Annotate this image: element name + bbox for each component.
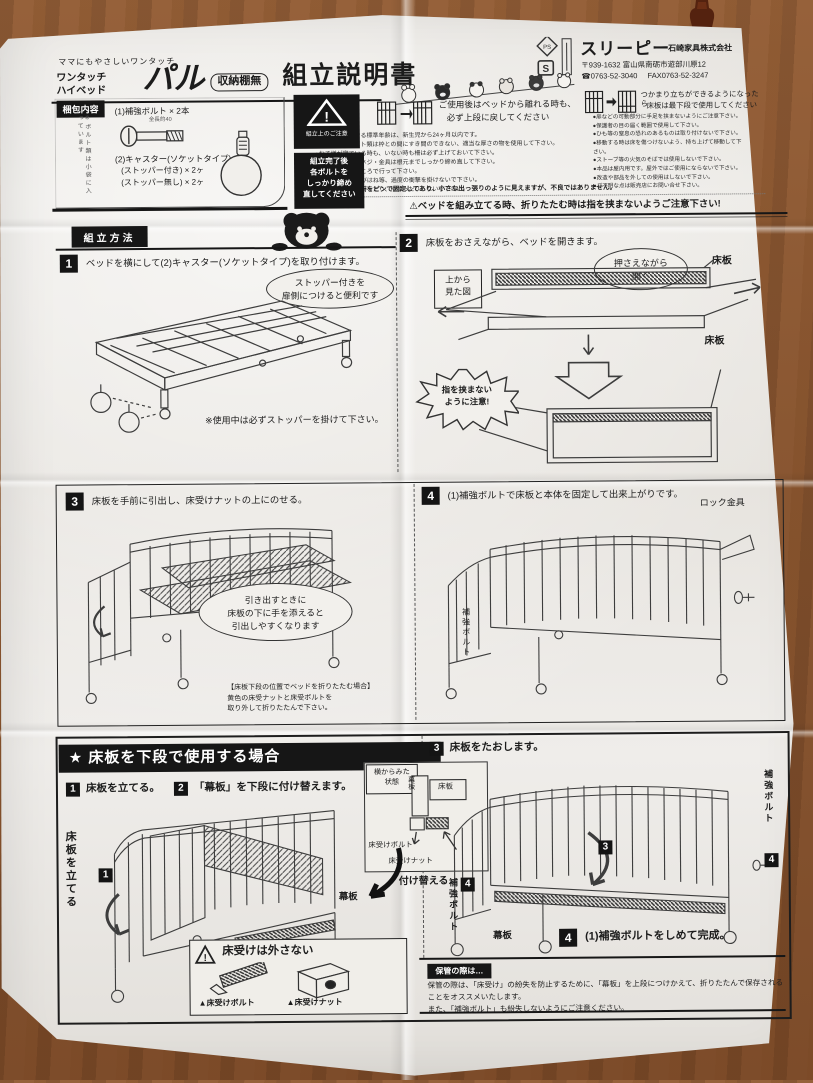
lower-step3-number: 3 xyxy=(430,742,444,756)
maku-board-label-right: 幕板 xyxy=(493,929,512,941)
pinch-warning-starburst: 指を挟まない ように注意! xyxy=(415,367,519,432)
raise-board-vertical-label: 床板を立てる xyxy=(62,831,77,971)
variant-badge: 収納棚無 xyxy=(210,73,268,91)
product-line2: ハイベッド xyxy=(56,85,106,98)
packing-item2: (2)キャスター(ソケットタイプ) xyxy=(115,153,231,164)
packing-item2b: (ストッパー無し) × 2ヶ xyxy=(121,178,204,189)
retighten-line: 直してください xyxy=(296,188,362,200)
storage-note-line1: 保管の際は、「床受け」の紛失を防止するために、「幕板」を上段につけかえて、折りた… xyxy=(427,977,783,1003)
company-name: スリーピー xyxy=(580,38,670,60)
storage-ribbon: 保管の際は… xyxy=(427,963,491,979)
reinforce-bolt-marker-right: 4 xyxy=(764,853,778,867)
lower-step4-number: 4 xyxy=(559,929,577,947)
lower-step3-text: 床板をたおします。 xyxy=(450,741,544,755)
step3-note-line: 取り外して折りたたんで下さい。 xyxy=(227,703,407,715)
floor-support-bolt-icon xyxy=(204,962,284,999)
retighten-box: 組立完了後 各ボルトを しっかり締め 直してください xyxy=(294,152,364,209)
assembly-section-label: 組立方法 xyxy=(72,226,148,248)
caution-item: ●移動する時は床を傷つけないよう、持ち上げて移動して下さい。 xyxy=(593,138,743,156)
pinch-warning-line2: ように注意! xyxy=(415,395,519,408)
step4-number: 4 xyxy=(422,487,440,505)
crib-upper-position-icon xyxy=(377,100,433,126)
floor-support-bolt-caption: ▲床受けボルト xyxy=(199,998,255,1008)
assembly-caution-box: ! 組立上のご注意 xyxy=(294,94,360,149)
step3-text: 床板を手前に引出し、床受けナットの上にのせる。 xyxy=(92,493,392,507)
reinforce-bolt-label-left: 補強ボルト xyxy=(447,878,459,962)
floor-support-nut-caption: ▲床受けナット xyxy=(287,998,343,1008)
caution-box-caption: 組立上のご注意 xyxy=(294,128,360,138)
bear-mascot-icon xyxy=(269,208,347,251)
packing-item2a: (ストッパー付き) × 2ヶ xyxy=(121,166,204,177)
company-tel: ☎0763-52-3040 xyxy=(581,71,637,80)
retighten-line: 組立完了後 xyxy=(296,155,362,167)
company-address: 〒939-1632 富山県南砺市遊部川原12 xyxy=(581,60,706,70)
product-name: パル xyxy=(142,60,204,99)
step3-number: 3 xyxy=(66,493,84,511)
step1-number: 1 xyxy=(60,255,78,273)
caution-item: ●扉などの可動部分に手足を挟まないようにご注意下さい。 xyxy=(593,112,743,122)
svg-text:PS: PS xyxy=(543,45,551,51)
step1-note: ※使用中は必ずストッパーを掛けて下さい。 xyxy=(205,414,384,427)
reinforce-bolt-marker-left: 4 xyxy=(461,877,475,891)
packing-divider xyxy=(52,207,287,212)
step2-number: 2 xyxy=(400,234,418,252)
reinforce-bolt-label-step4: 補強ボルト xyxy=(461,607,472,671)
reinforce-bolt-label-right: 補強ボルト xyxy=(762,769,774,849)
packing-side-note: ※ボルト類は小袋に入っています xyxy=(75,114,91,200)
floor-board-label-bottom: 床板 xyxy=(704,335,724,348)
usage-warning-1-line1: ご使用後はベッドから離れる時も、 xyxy=(439,99,576,111)
usage-warning-1-line2: 必ず上段に戻してください xyxy=(447,112,550,124)
raise-board-marker: 1 xyxy=(99,868,113,882)
svg-text:!: ! xyxy=(324,109,329,125)
step3-bubble-line: 引出しやすくなります xyxy=(200,618,352,632)
company-corp: 石崎家具株式会社 xyxy=(668,43,732,54)
usage-warning-2-line2: 床板は最下段で使用してください xyxy=(647,100,767,110)
inset-maku-label: 幕板 xyxy=(406,776,415,816)
lower-step4-text: (1)補強ボルトをしめて完成。 xyxy=(585,929,731,944)
floor-support-warning-box: ! 床受けは外さない ▲床受けボルト ▲床受けナット xyxy=(189,938,408,1016)
caution-item: ●本品は屋内用です。屋外ではご使用にならないで下さい。 xyxy=(593,164,743,174)
packing-item1: (1)補強ボルト × 2本 xyxy=(115,106,190,117)
fold-warning-underline2 xyxy=(405,216,787,220)
floor-support-warning-title: 床受けは外さない xyxy=(222,944,313,959)
crib-lower-position-icon xyxy=(584,90,636,114)
company-fax: FAX0763-52-3247 xyxy=(647,71,708,80)
lower-step1-number: 1 xyxy=(66,783,80,797)
fold-warning: ⚠ベッドを組み立てる時、折りたたむ時は指を挟まないようご注意下さい! xyxy=(409,198,720,212)
lower-step3-marker: 3 xyxy=(598,840,612,854)
retighten-line: しっかり締め xyxy=(296,177,362,189)
floor-support-nut-icon xyxy=(290,957,354,1000)
step-divider-dashed xyxy=(396,232,399,472)
retighten-line: 各ボルトを xyxy=(296,166,362,178)
swap-arrow-icon xyxy=(338,842,409,913)
step1-text: ベッドを横にして(2)キャスター(ソケットタイプ)を取り付けます。 xyxy=(86,255,386,269)
bolt-icon xyxy=(119,124,189,149)
step3-bubble-line: 引き出すときに xyxy=(199,592,351,606)
warning-triangle-icon: ! xyxy=(307,98,347,126)
product-line1: ワンタッチ xyxy=(56,72,106,85)
pinch-warning-line1: 指を挟まない xyxy=(415,383,519,396)
bed-opening-topview-drawing xyxy=(418,249,780,468)
step3-bubble-line: 床板の下に手を添えると xyxy=(200,605,352,619)
caster-icon xyxy=(215,129,272,199)
step2-text: 床板をおさえながら、ベッドを開きます。 xyxy=(426,234,726,248)
crib-complete-drawing xyxy=(428,505,770,713)
